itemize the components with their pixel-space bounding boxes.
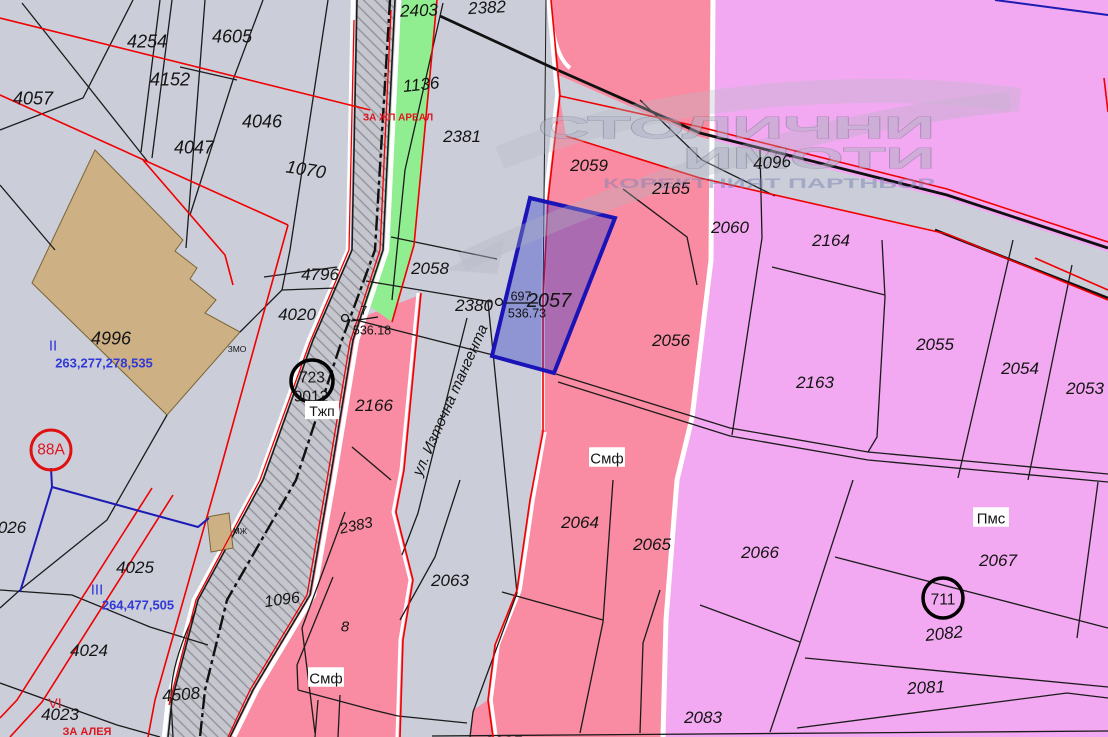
map-label-III: III bbox=[91, 581, 104, 598]
map-label-4796: 4796 bbox=[301, 265, 339, 284]
map-label-8: 8 bbox=[341, 618, 350, 635]
watermark-line2: ИМОТИ bbox=[683, 143, 935, 175]
map-label-4023: 4023 bbox=[41, 705, 79, 724]
map-label-2164: 2164 bbox=[811, 231, 850, 250]
map-label-2063: 2063 bbox=[430, 571, 469, 590]
map-label-Смф: Смф bbox=[590, 450, 624, 467]
map-label-4046: 4046 bbox=[242, 111, 283, 131]
map-label-4605: 4605 bbox=[212, 26, 253, 46]
map-label-2066: 2066 bbox=[740, 543, 779, 562]
map-label-II: II bbox=[49, 337, 57, 354]
map-label-88А: 88А bbox=[37, 442, 65, 459]
map-label-711: 711 bbox=[931, 592, 956, 609]
map-label-536.18: 536.18 bbox=[353, 324, 391, 338]
map-label-2083: 2083 bbox=[683, 708, 722, 727]
building-mj bbox=[207, 513, 233, 552]
map-label-4020: 4020 bbox=[278, 305, 316, 324]
map-label-2055: 2055 bbox=[915, 335, 954, 354]
map-label-ЗААЛЕЯ: ЗА АЛЕЯ bbox=[63, 726, 112, 737]
map-label-ЗАЖПАРЕАЛ: ЗА ЖП АРЕАЛ bbox=[363, 113, 433, 124]
map-label-2381: 2381 bbox=[442, 127, 481, 146]
map-label-2163: 2163 bbox=[795, 373, 834, 392]
map-label-723: 723 bbox=[299, 370, 325, 387]
map-label-Тжп: Тжп bbox=[309, 403, 335, 419]
map-label-4508: 4508 bbox=[161, 683, 201, 705]
map-label-4152: 4152 bbox=[150, 69, 190, 89]
map-label-2057: 2057 bbox=[526, 290, 572, 312]
map-label-1136: 1136 bbox=[402, 73, 441, 96]
map-label-263277278535: 263,277,278,535 bbox=[55, 356, 153, 371]
map-label-4047: 4047 bbox=[174, 137, 215, 157]
map-label-2058: 2058 bbox=[410, 259, 449, 278]
map-label-026: 026 bbox=[0, 518, 27, 537]
map-label-2166: 2166 bbox=[354, 396, 393, 415]
map-label-2085: 2085 bbox=[483, 733, 522, 737]
cadastral-map-viewport[interactable]: СТОЛИЧНИ ИМОТИ КОРЕКТНИЯТ ПАРТНЬОР ул. И… bbox=[0, 0, 1108, 737]
map-label-Пмс: Пмс bbox=[977, 510, 1006, 527]
map-label-4096: 4096 bbox=[753, 152, 793, 174]
map-label-2056: 2056 bbox=[651, 331, 690, 350]
map-label-2380: 2380 bbox=[454, 296, 493, 315]
map-label-2054: 2054 bbox=[1000, 359, 1039, 378]
map-label-Смф: Смф bbox=[309, 670, 343, 687]
map-label-264477505: 264,477,505 bbox=[102, 598, 174, 613]
map-label-2060: 2060 bbox=[710, 218, 749, 237]
map-label-4025: 4025 bbox=[116, 558, 154, 577]
watermark-line1: СТОЛИЧНИ bbox=[538, 110, 935, 145]
map-label-2382: 2382 bbox=[467, 0, 507, 18]
map-label-7: 7 bbox=[361, 303, 368, 317]
map-label-4996: 4996 bbox=[91, 328, 132, 348]
map-label-2059: 2059 bbox=[569, 156, 608, 175]
map-label-4254: 4254 bbox=[127, 31, 167, 51]
map-label-2053: 2053 bbox=[1065, 379, 1104, 398]
cadastral-map[interactable]: СТОЛИЧНИ ИМОТИ КОРЕКТНИЯТ ПАРТНЬОР ул. И… bbox=[0, 0, 1108, 737]
map-label-2065: 2065 bbox=[632, 535, 671, 554]
map-label-МЖ: МЖ bbox=[233, 527, 248, 536]
map-label-4057: 4057 bbox=[13, 88, 54, 108]
map-label-2403: 2403 bbox=[399, 0, 439, 20]
map-label-2064: 2064 bbox=[560, 513, 599, 532]
map-label-2081: 2081 bbox=[906, 677, 946, 698]
map-label-2067: 2067 bbox=[978, 551, 1017, 570]
map-label-4024: 4024 bbox=[70, 641, 108, 660]
map-label-2165: 2165 bbox=[651, 179, 690, 198]
map-label-ЗМО: ЗМО bbox=[228, 344, 247, 354]
